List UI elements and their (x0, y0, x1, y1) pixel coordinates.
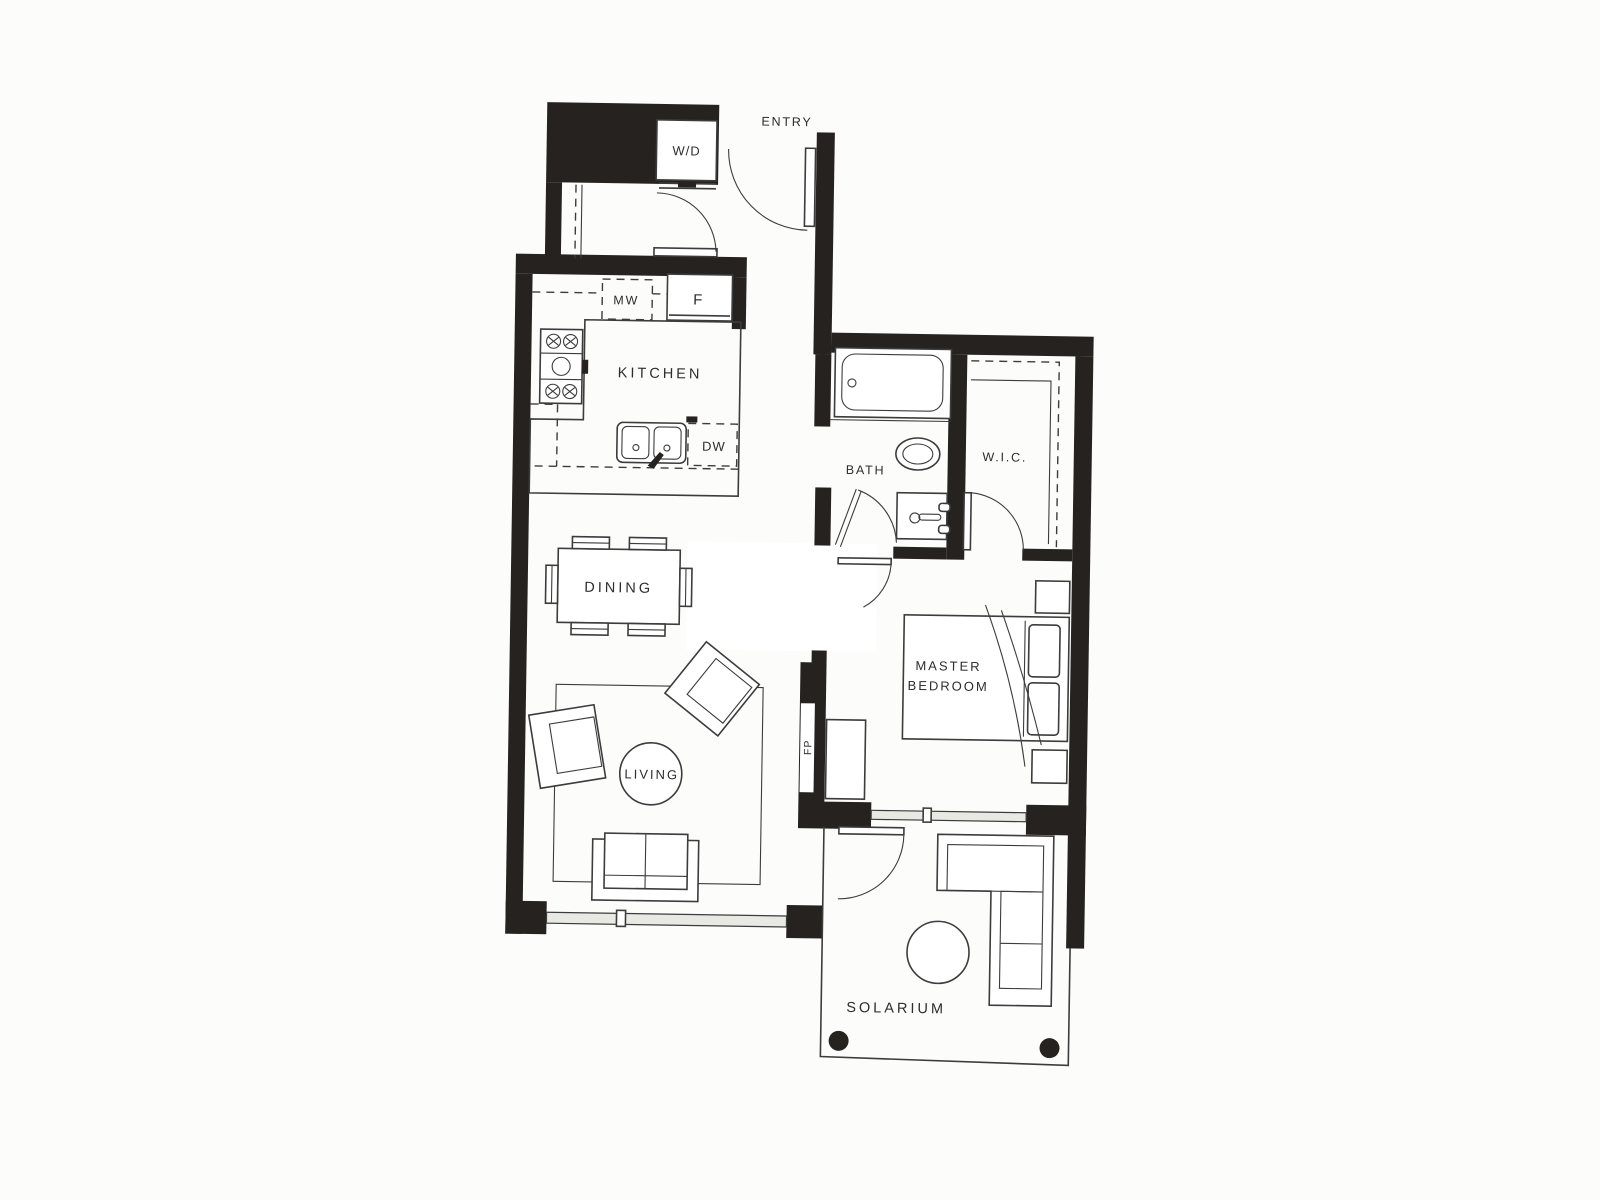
living-window (546, 912, 786, 927)
room-label-kitchen: KITCHEN (618, 365, 703, 382)
pillow (1028, 625, 1060, 677)
room-label-solarium: SOLARIUM (846, 1000, 946, 1018)
living-area: LIVING FP (526, 639, 816, 903)
vanity-tap-knob (939, 503, 950, 511)
dishwasher-handle (686, 416, 697, 422)
sink-outline (617, 422, 687, 463)
armchair-outer (665, 642, 759, 736)
label-washer-dryer: W/D (672, 143, 701, 158)
nightstand (1032, 750, 1068, 784)
wall-bedroom-bottom-right (1026, 805, 1086, 836)
solarium-table (907, 921, 970, 984)
label-fireplace: FP (802, 740, 814, 756)
wall-left-outer (505, 274, 532, 934)
range-knob (582, 360, 588, 374)
bedroom-window (871, 810, 1026, 821)
label-dishwasher: DW (702, 439, 726, 454)
sectional-cushion-divider (1000, 943, 1042, 944)
room-label-living: LIVING (624, 766, 679, 782)
dining-chair-line (551, 565, 552, 603)
room-label-entry: ENTRY (761, 114, 812, 129)
dining-chair-line (572, 543, 609, 544)
bath-door-leaf (840, 491, 861, 547)
wic-door-leaf (963, 493, 971, 550)
range-divider (540, 353, 582, 354)
room-label-dining: DINING (584, 580, 653, 597)
dining-chair-line (685, 568, 686, 606)
nightstand (1035, 581, 1069, 614)
bath-vanity (897, 493, 951, 540)
solarium: SOLARIUM (820, 827, 1072, 1066)
room-label-master-line2: BEDROOM (907, 678, 988, 694)
washer-dryer-handle (678, 182, 696, 187)
wall-bath-left-stub (814, 487, 831, 545)
dining-chair-line (629, 543, 666, 544)
bath-door-leaf (835, 489, 856, 545)
floor-plan: ENTRY W/D MW F (503, 102, 1097, 1066)
solarium-door-leaf (839, 827, 904, 835)
dining-chair-line (628, 629, 665, 630)
wall-laundry-left (545, 182, 562, 262)
bedroom-window-mullion (923, 808, 931, 822)
room-label-wic: W.I.C. (982, 450, 1027, 465)
sofa (592, 833, 699, 902)
column (828, 1031, 848, 1051)
kitchen-sink (617, 422, 687, 469)
bathtub (834, 348, 951, 419)
closet-rod-dashed (575, 185, 576, 259)
upper-cabinet-dashed (532, 292, 667, 294)
dining-area: DINING (545, 536, 693, 636)
floor-plan-svg: ENTRY W/D MW F (0, 0, 1600, 1200)
column (1039, 1038, 1059, 1058)
scanned-floor-plan-page: ENTRY W/D MW F (0, 0, 1600, 1200)
range-cooktop (540, 329, 589, 404)
wall-entry-right (813, 132, 834, 354)
entry-door-swing (727, 149, 808, 230)
label-fridge: F (693, 291, 703, 308)
label-microwave: MW (613, 293, 639, 307)
bathroom: BATH (828, 348, 952, 549)
room-label-bath: BATH (846, 463, 886, 478)
kitchen: MW F (529, 272, 741, 496)
washer-dryer-shelf-line (659, 188, 716, 189)
wic-door-swing (970, 493, 1024, 551)
walk-in-closet: W.I.C. (963, 361, 1059, 551)
wall-right-outer (1066, 356, 1093, 948)
entry-door-leaf (804, 148, 815, 226)
toilet (896, 438, 940, 471)
armchair (665, 642, 759, 736)
wall-hall-bottom (893, 547, 946, 560)
armchair (529, 705, 606, 789)
living-window-mullion (616, 910, 625, 926)
range-divider (540, 379, 582, 380)
dining-chair-line (571, 629, 608, 630)
fridge-detail-line (669, 315, 730, 316)
closet-door-leaf (654, 248, 717, 257)
vanity-tap-knob (939, 525, 950, 533)
wall-living-bottom-right (786, 905, 823, 939)
closet-shelf-line (581, 185, 582, 259)
solarium-door-swing (838, 834, 904, 900)
wall-wic-bottom (1022, 549, 1072, 562)
wall-living-bottom-left (505, 901, 547, 935)
bath-door-swing (857, 490, 897, 543)
dresser (825, 720, 865, 800)
wall-bath-left-upper (814, 354, 831, 426)
room-label-master-line1: MASTER (915, 658, 981, 674)
bedroom-door-leaf (838, 558, 891, 565)
closet-door-swing (656, 193, 717, 252)
tub-deck-line (830, 420, 950, 422)
